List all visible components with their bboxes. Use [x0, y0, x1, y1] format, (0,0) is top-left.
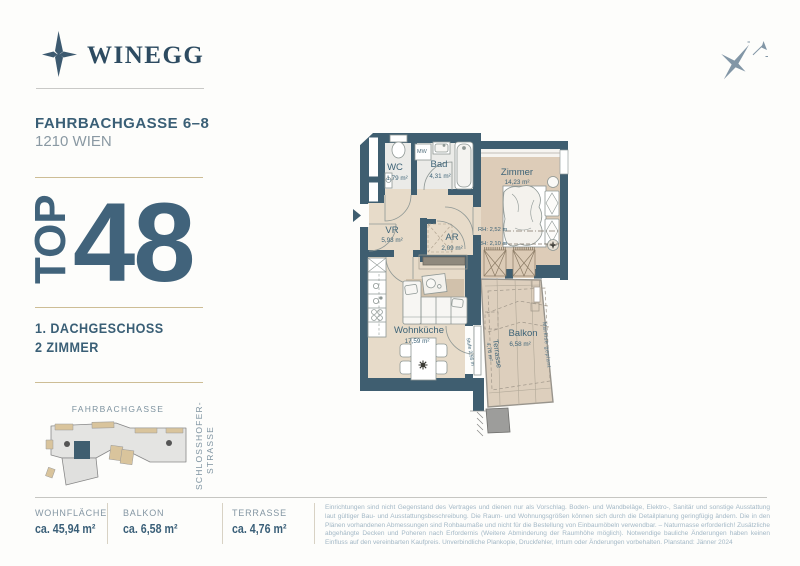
svg-text:Zimmer: Zimmer — [501, 167, 533, 178]
svg-text:RH: 2,52 m: RH: 2,52 m — [478, 227, 507, 233]
svg-text:WC: WC — [387, 162, 403, 173]
svg-text:RH: 2,10 m: RH: 2,10 m — [478, 241, 507, 247]
svg-text:5,93 m²: 5,93 m² — [381, 237, 402, 244]
svg-text:1,79 m²: 1,79 m² — [386, 175, 407, 182]
svg-text:Balkon: Balkon — [508, 328, 537, 339]
svg-text:VR: VR — [385, 225, 398, 236]
svg-text:Wohnküche: Wohnküche — [394, 325, 444, 336]
svg-text:6,58 m²: 6,58 m² — [509, 341, 530, 348]
svg-text:Bad: Bad — [431, 159, 448, 170]
svg-text:4,31 m²: 4,31 m² — [429, 173, 450, 180]
svg-text:17,59 m²: 17,59 m² — [405, 338, 430, 345]
svg-text:2,09 m²: 2,09 m² — [441, 245, 462, 252]
svg-text:MW: MW — [417, 149, 428, 155]
svg-text:14,23 m²: 14,23 m² — [505, 179, 530, 186]
svg-text:AR: AR — [445, 232, 458, 243]
